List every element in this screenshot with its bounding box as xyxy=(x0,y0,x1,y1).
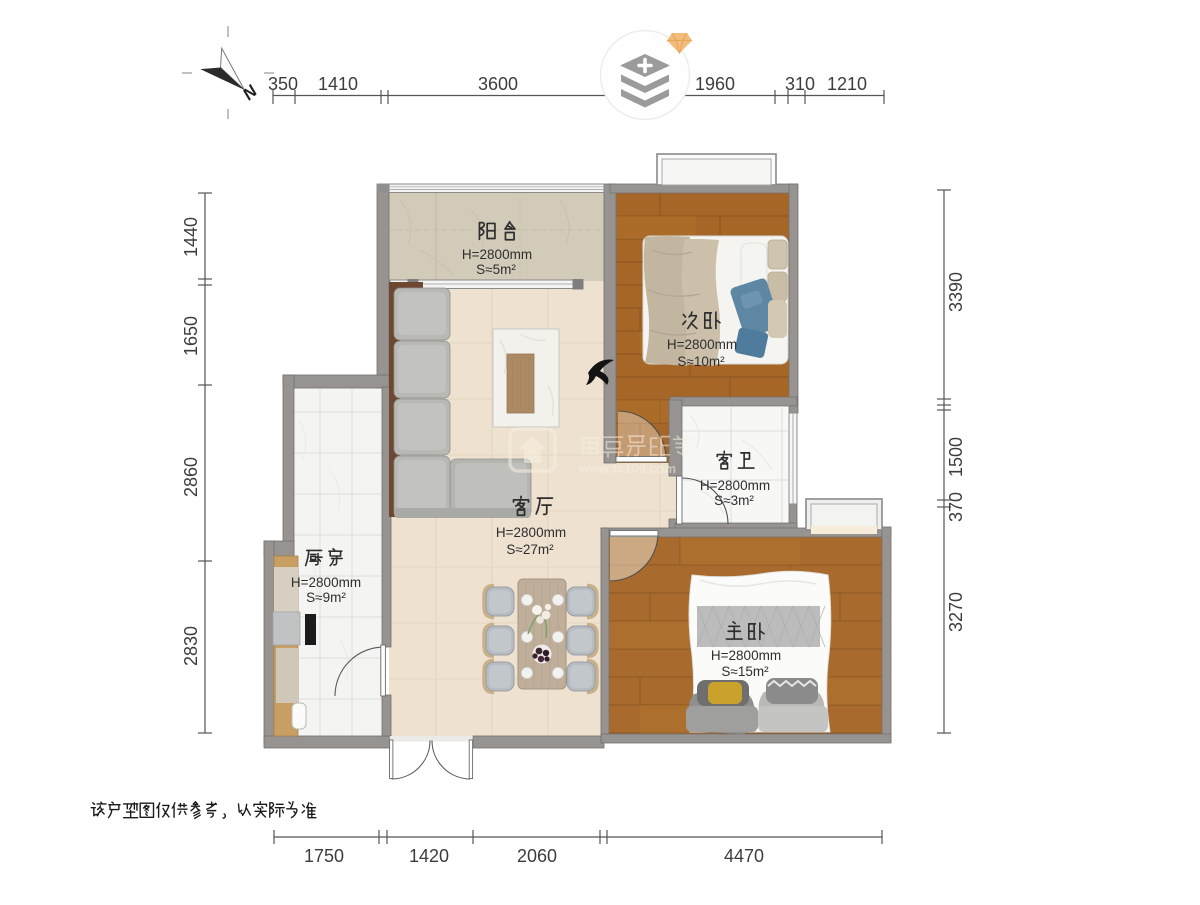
svg-text:1440: 1440 xyxy=(181,217,201,257)
svg-text:H=2800mm: H=2800mm xyxy=(667,337,737,352)
svg-text:2860: 2860 xyxy=(181,457,201,497)
svg-text:H=2800mm: H=2800mm xyxy=(291,575,361,590)
svg-text:H=2800mm: H=2800mm xyxy=(711,648,781,663)
svg-text:3390: 3390 xyxy=(946,272,966,312)
svg-text:1410: 1410 xyxy=(318,74,358,94)
svg-text:1500: 1500 xyxy=(946,437,966,477)
svg-text:1210: 1210 xyxy=(827,74,867,94)
svg-text:S≈9m²: S≈9m² xyxy=(306,590,346,605)
svg-text:3270: 3270 xyxy=(946,592,966,632)
svg-text:310: 310 xyxy=(785,74,815,94)
svg-text:S≈5m²: S≈5m² xyxy=(476,262,516,277)
svg-text:1960: 1960 xyxy=(695,74,735,94)
svg-text:H=2800mm: H=2800mm xyxy=(700,478,770,493)
svg-text:2830: 2830 xyxy=(181,626,201,666)
svg-text:S≈3m²: S≈3m² xyxy=(714,493,754,508)
svg-text:1420: 1420 xyxy=(409,846,449,866)
svg-text:1750: 1750 xyxy=(304,846,344,866)
svg-text:H=2800mm: H=2800mm xyxy=(462,247,532,262)
svg-text:350: 350 xyxy=(268,74,298,94)
svg-text:www.fc100.com: www.fc100.com xyxy=(578,461,676,476)
svg-text:S≈27m²: S≈27m² xyxy=(506,542,554,557)
svg-text:370: 370 xyxy=(946,492,966,522)
svg-text:H=2800mm: H=2800mm xyxy=(496,525,566,540)
svg-text:1650: 1650 xyxy=(181,316,201,356)
svg-text:3600: 3600 xyxy=(478,74,518,94)
svg-text:2060: 2060 xyxy=(517,846,557,866)
svg-text:S≈15m²: S≈15m² xyxy=(721,664,769,679)
svg-text:S≈10m²: S≈10m² xyxy=(677,354,725,369)
svg-text:4470: 4470 xyxy=(724,846,764,866)
